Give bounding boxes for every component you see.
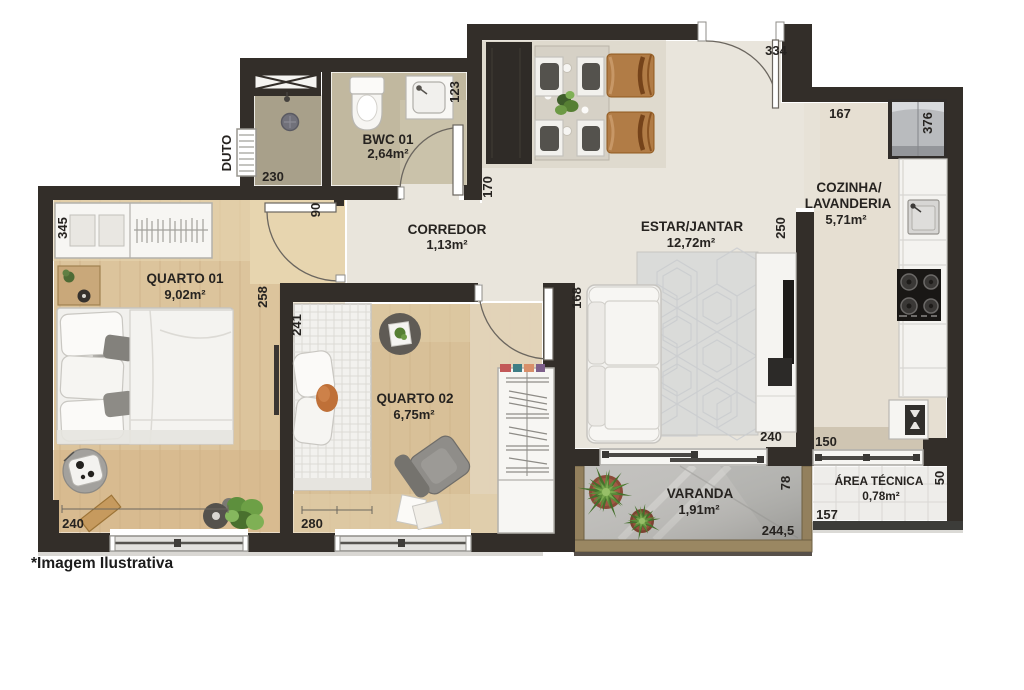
svg-text:78: 78	[778, 476, 793, 490]
svg-text:ESTAR/JANTAR: ESTAR/JANTAR	[641, 219, 744, 234]
svg-text:6,75m²: 6,75m²	[393, 407, 435, 422]
svg-text:50: 50	[932, 471, 947, 485]
svg-text:250: 250	[773, 217, 788, 239]
svg-text:ÁREA TÉCNICA: ÁREA TÉCNICA	[835, 474, 924, 488]
svg-text:244,5: 244,5	[762, 523, 795, 538]
svg-text:12,72m²: 12,72m²	[667, 235, 716, 250]
svg-text:CORREDOR: CORREDOR	[408, 222, 487, 237]
svg-text:345: 345	[55, 217, 70, 239]
svg-text:0,78m²: 0,78m²	[862, 489, 899, 503]
svg-text:5,71m²: 5,71m²	[825, 212, 867, 227]
svg-text:157: 157	[816, 507, 838, 522]
svg-text:VARANDA: VARANDA	[667, 486, 734, 501]
svg-text:COZINHA/: COZINHA/	[816, 180, 881, 195]
svg-text:*Imagem Ilustrativa: *Imagem Ilustrativa	[31, 555, 174, 572]
svg-text:168: 168	[569, 287, 584, 309]
svg-text:167: 167	[829, 106, 851, 121]
svg-text:170: 170	[480, 176, 495, 198]
svg-text:BWC 01: BWC 01	[362, 132, 413, 147]
svg-text:2,64m²: 2,64m²	[367, 146, 409, 161]
svg-text:9,02m²: 9,02m²	[164, 287, 206, 302]
svg-text:280: 280	[301, 516, 323, 531]
svg-text:QUARTO 02: QUARTO 02	[376, 391, 453, 406]
svg-text:1,13m²: 1,13m²	[426, 237, 468, 252]
svg-text:258: 258	[255, 286, 270, 308]
svg-text:90: 90	[308, 203, 323, 217]
svg-text:LAVANDERIA: LAVANDERIA	[805, 196, 892, 211]
svg-text:QUARTO 01: QUARTO 01	[146, 271, 224, 286]
svg-text:334: 334	[765, 43, 787, 58]
svg-text:376: 376	[920, 112, 935, 134]
svg-text:1,91m²: 1,91m²	[678, 502, 720, 517]
svg-text:241: 241	[289, 314, 304, 336]
svg-text:240: 240	[760, 429, 782, 444]
svg-text:150: 150	[815, 434, 837, 449]
svg-text:240: 240	[62, 516, 84, 531]
svg-text:DUTO: DUTO	[219, 135, 234, 172]
svg-text:123: 123	[447, 81, 462, 103]
svg-text:230: 230	[262, 169, 284, 184]
